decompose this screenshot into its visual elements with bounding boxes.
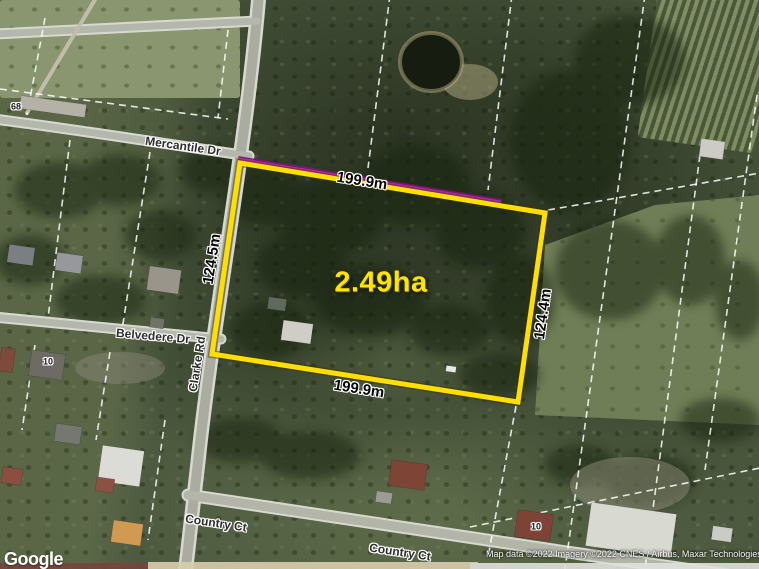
- satellite-map-canvas[interactable]: Mercantile Dr Clarke Rd Belvedere Dr Cou…: [0, 0, 759, 569]
- building: [7, 244, 35, 265]
- vehicle: [446, 365, 457, 372]
- building: [375, 491, 392, 504]
- building: [146, 266, 181, 294]
- google-logo[interactable]: Google: [4, 550, 63, 568]
- building: [388, 460, 427, 491]
- house-number-68: 68: [11, 103, 21, 112]
- house-number-10-west: 10: [43, 358, 53, 367]
- building: [1, 467, 23, 486]
- building: [267, 297, 286, 311]
- building: [699, 138, 725, 159]
- building: [111, 520, 144, 546]
- area-label: 2.49ha: [334, 269, 427, 298]
- building: [281, 320, 313, 344]
- building: [95, 477, 115, 493]
- dirt-patch: [570, 457, 690, 513]
- building: [149, 317, 164, 329]
- map-attribution: Map data ©2022 Imagery ©2022 CNES / Airb…: [486, 550, 759, 559]
- building: [0, 347, 16, 373]
- dirt-patch: [75, 352, 165, 384]
- house-number-10-east: 10: [531, 523, 541, 532]
- tree-canopy: [0, 15, 759, 505]
- building: [711, 526, 733, 543]
- bottom-edge-strip: [470, 563, 759, 569]
- building: [55, 252, 83, 273]
- pond: [400, 33, 462, 91]
- building: [54, 423, 82, 444]
